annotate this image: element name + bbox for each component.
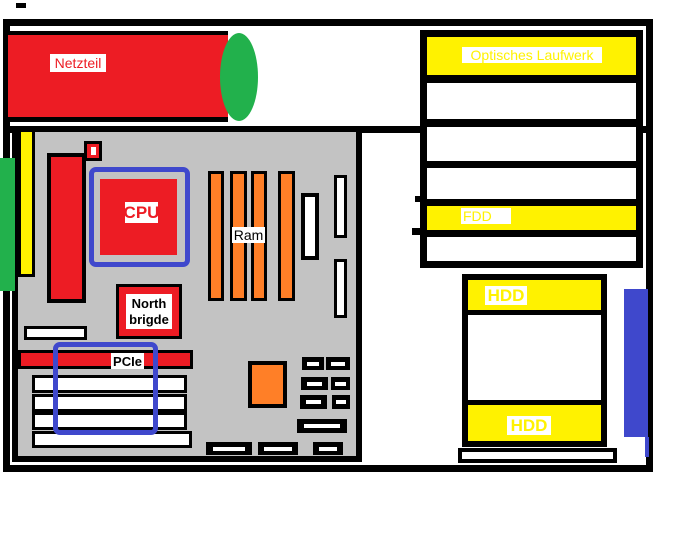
bay-empty [427, 127, 636, 161]
stray-mark [16, 3, 26, 8]
hdd-lower-label: HDD [507, 416, 551, 435]
header-bar-narrow [334, 175, 347, 238]
jumper-block [313, 442, 343, 455]
jumper-block [300, 395, 327, 409]
blue-rail [624, 289, 648, 437]
north-bridge-label-line1: North [132, 296, 167, 312]
connector-pin [91, 147, 96, 155]
bay-divider [427, 75, 636, 83]
cpu-power-connector [84, 141, 102, 161]
jumper-block [332, 395, 350, 409]
jumper-block [302, 357, 324, 370]
jumper-block [301, 377, 328, 390]
bay-floppy [427, 206, 636, 230]
north-bridge-face: North brigde [126, 294, 172, 329]
bay-divider [427, 199, 636, 206]
stray-dot [415, 196, 421, 202]
ram-label: Ram [232, 227, 265, 243]
north-bridge: North brigde [116, 284, 182, 339]
ram-slot [278, 171, 295, 301]
pcie-area-outline [53, 342, 158, 435]
drive-bay-stack [420, 30, 643, 268]
diagram-canvas: Netzteil CPU Ram North brigde PCIe [0, 0, 692, 551]
ram-slot [208, 171, 224, 301]
power-supply-label: Netzteil [50, 54, 106, 72]
stray-dot [412, 228, 421, 235]
header-bar-narrow [334, 259, 347, 318]
header-bar-wide [301, 193, 319, 260]
hdd-upper-label: HDD [485, 286, 527, 305]
blue-rail-tail [645, 437, 649, 457]
psu-fan [220, 33, 258, 121]
cpu-label: CPU [125, 202, 158, 223]
floppy-drive-label: FDD [461, 208, 511, 224]
optical-drive-label: Optisches Laufwerk [462, 47, 602, 63]
bay-divider [427, 119, 636, 127]
jumper-block [258, 442, 298, 455]
io-port-green [0, 158, 15, 291]
power-supply [8, 31, 228, 122]
bay-empty [427, 83, 636, 119]
bay-divider [427, 161, 636, 168]
io-port-red [47, 153, 86, 303]
jumper-block [206, 442, 252, 455]
jumper-block [326, 357, 350, 370]
jumper-block [331, 377, 350, 390]
hdd-cage-base [458, 448, 617, 463]
bay-divider [427, 230, 636, 237]
bay-empty [427, 168, 636, 199]
jumper-block-wide [297, 419, 347, 433]
io-port-yellow [18, 129, 35, 277]
north-bridge-label-line2: brigde [129, 312, 169, 328]
slot-small [24, 326, 87, 340]
hdd-bay-empty [468, 315, 601, 400]
bay-empty [427, 237, 636, 261]
south-bridge [248, 361, 287, 408]
